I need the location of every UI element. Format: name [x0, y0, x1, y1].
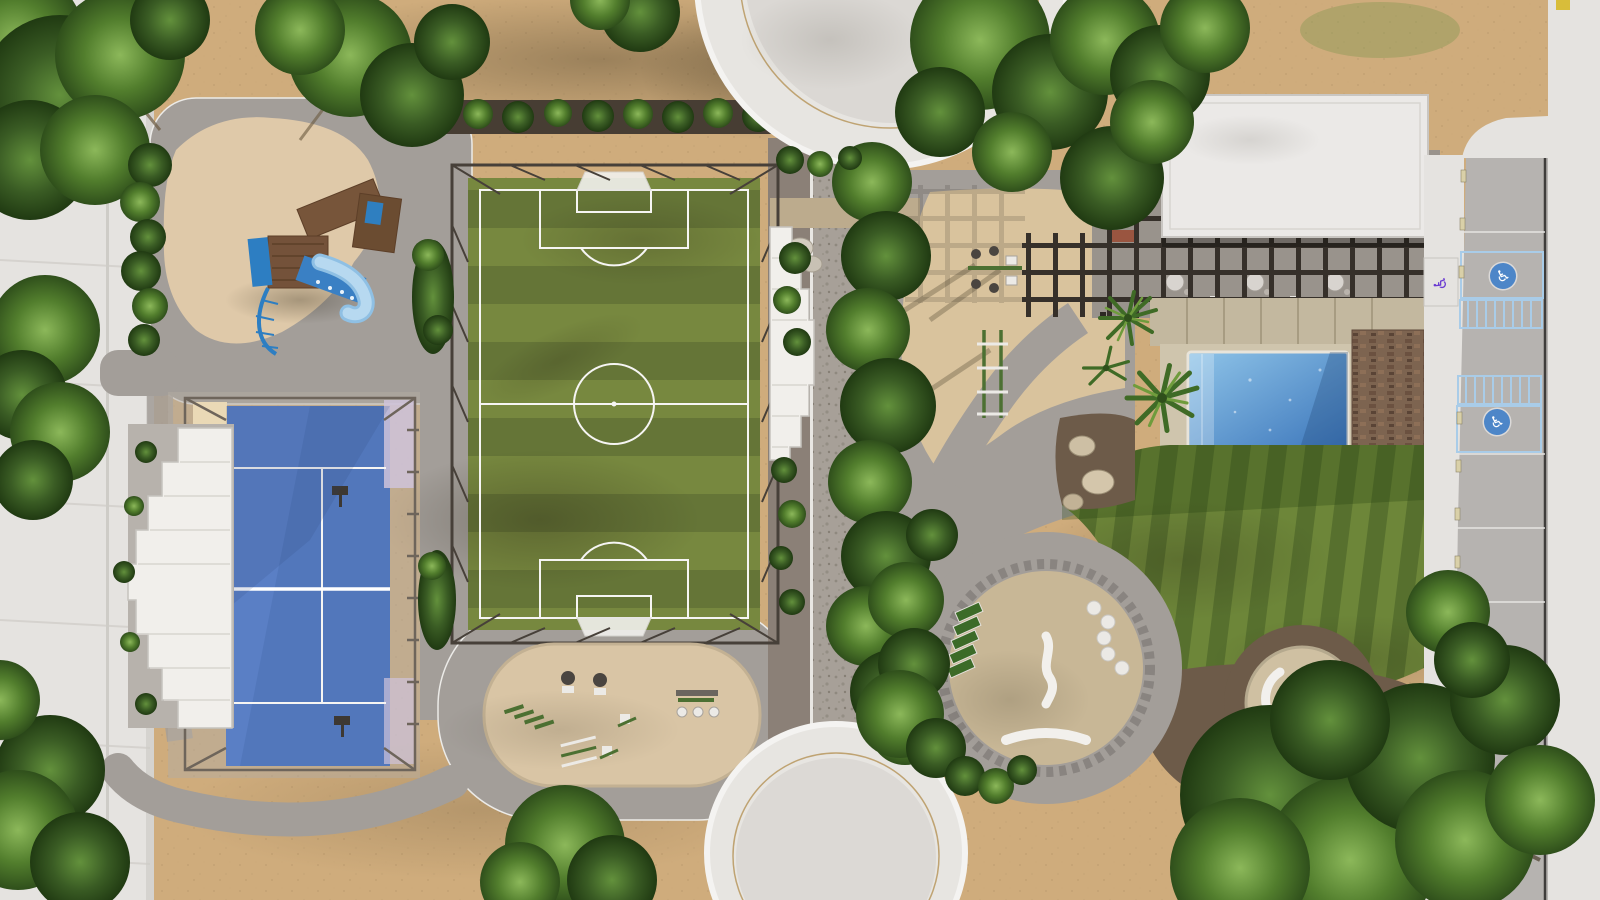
wheelchair-icon: ♿	[1494, 266, 1513, 286]
wheelchair-icon: ♿	[1488, 412, 1507, 432]
terrace-west	[113, 424, 234, 728]
aerial-park-render: ♿ ♿ ♿	[0, 0, 1600, 900]
goal-south	[577, 618, 651, 636]
accessible-parking-sign: ♿	[1418, 266, 1464, 300]
wheelchair-icon: ♿	[1431, 275, 1451, 290]
building-roof	[1162, 95, 1428, 247]
goal-north	[577, 172, 651, 190]
site-plan-canvas	[0, 0, 1600, 900]
pool-zone	[1150, 298, 1448, 468]
